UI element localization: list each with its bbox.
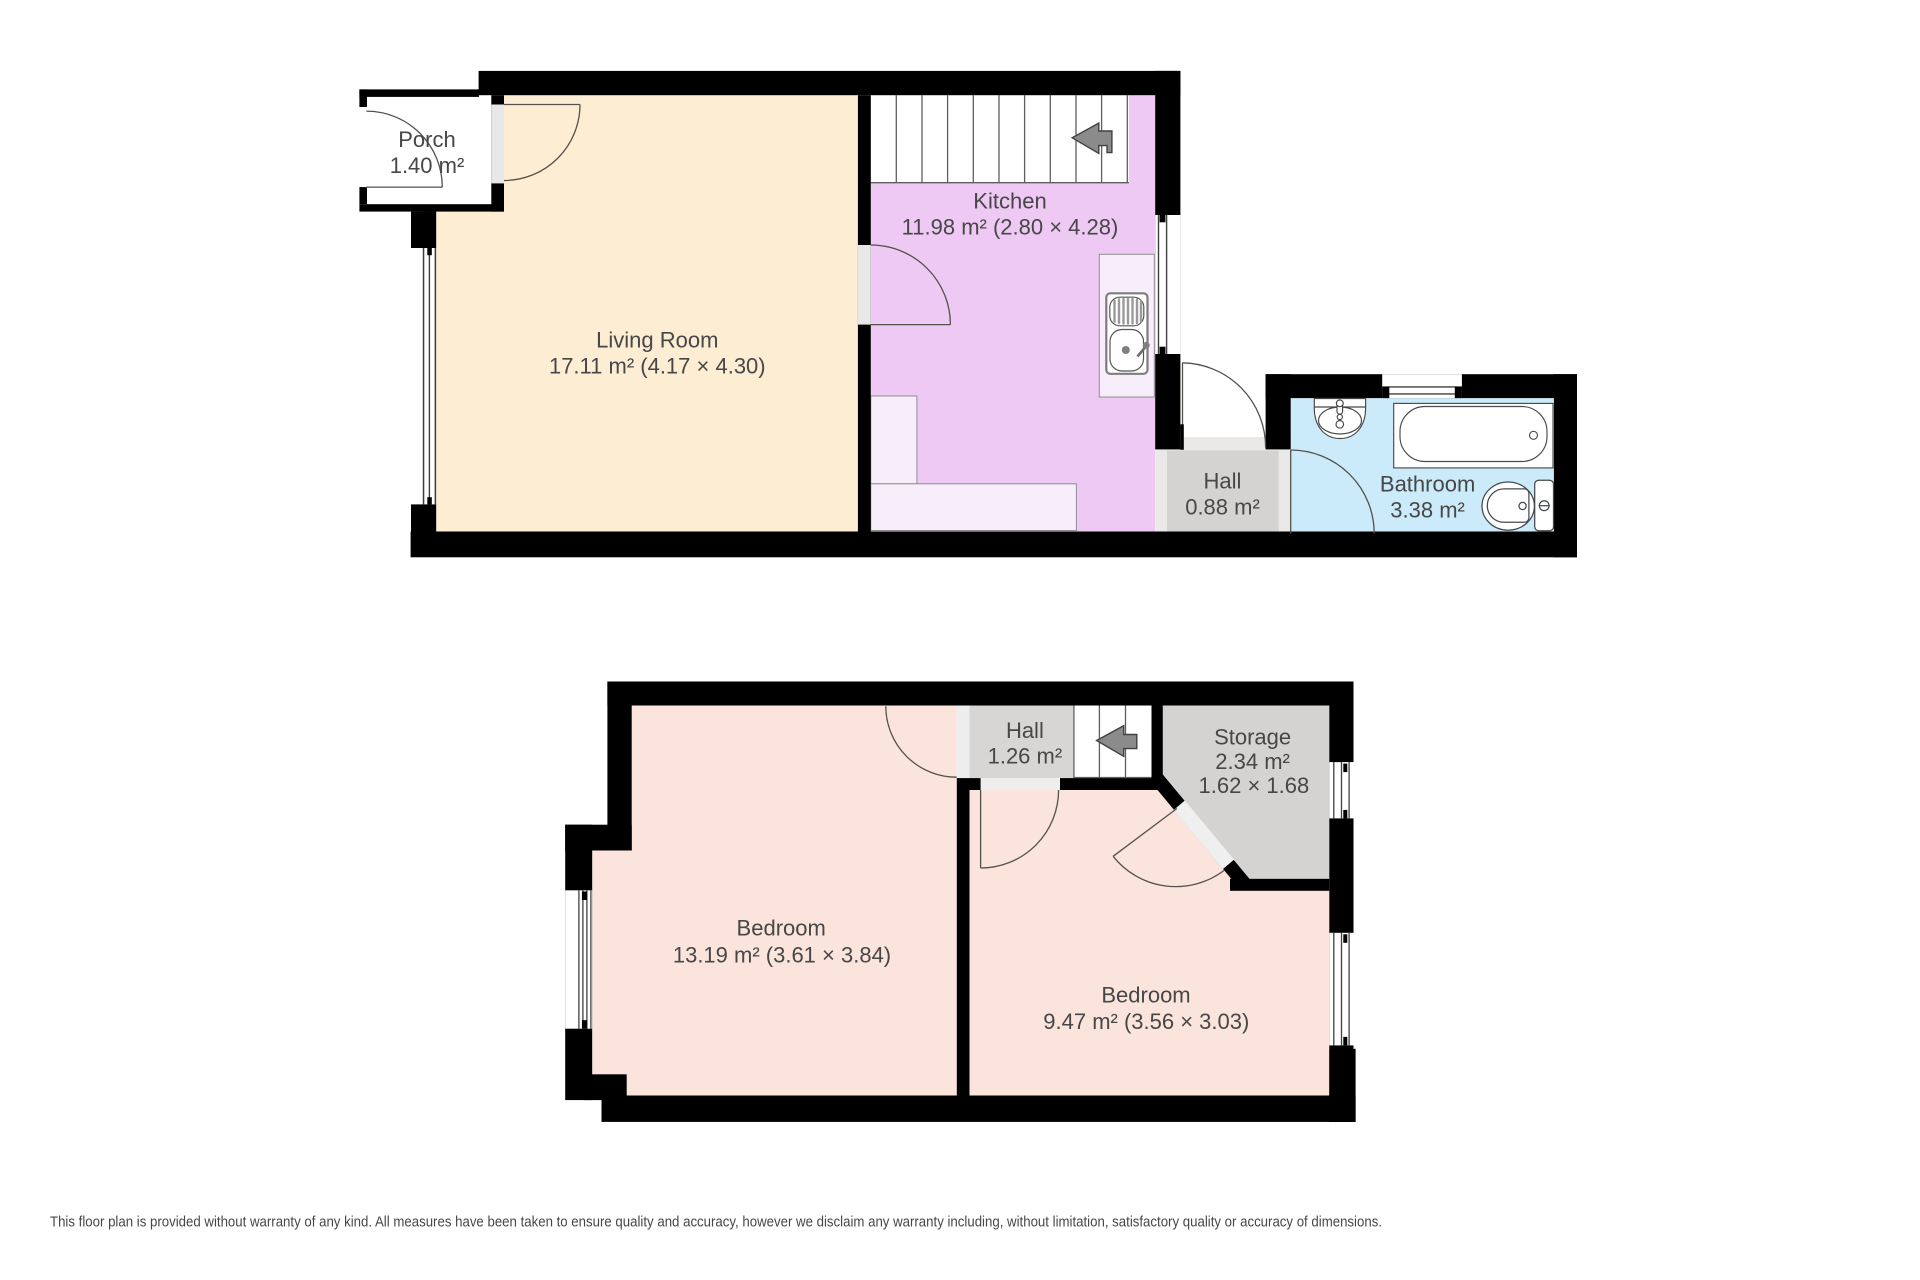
svg-text:1.26 m²: 1.26 m² [988,744,1063,769]
svg-text:1.40 m²: 1.40 m² [390,153,465,178]
svg-text:Hall: Hall [1006,718,1044,743]
svg-text:Bathroom: Bathroom [1380,471,1475,496]
svg-text:2.34 m²: 2.34 m² [1215,749,1290,774]
svg-text:Hall: Hall [1204,469,1242,494]
svg-text:Bedroom: Bedroom [737,916,826,941]
svg-text:13.19 m² (3.61 × 3.84): 13.19 m² (3.61 × 3.84) [673,943,891,968]
svg-text:17.11 m² (4.17 × 4.30): 17.11 m² (4.17 × 4.30) [549,353,766,378]
svg-text:0.88 m²: 0.88 m² [1185,495,1260,520]
svg-text:1.62 × 1.68: 1.62 × 1.68 [1199,773,1310,798]
svg-text:9.47 m² (3.56 × 3.03): 9.47 m² (3.56 × 3.03) [1043,1009,1249,1034]
svg-text:Kitchen: Kitchen [973,189,1046,214]
svg-text:3.38 m²: 3.38 m² [1390,498,1465,523]
svg-text:11.98 m² (2.80 × 4.28): 11.98 m² (2.80 × 4.28) [902,215,1119,240]
svg-text:Living Room: Living Room [596,328,718,353]
svg-text:Bedroom: Bedroom [1101,982,1190,1007]
svg-text:Storage: Storage [1214,725,1291,750]
svg-text:Porch: Porch [398,127,455,152]
svg-text:This floor plan is provided wi: This floor plan is provided without warr… [50,1214,1382,1231]
